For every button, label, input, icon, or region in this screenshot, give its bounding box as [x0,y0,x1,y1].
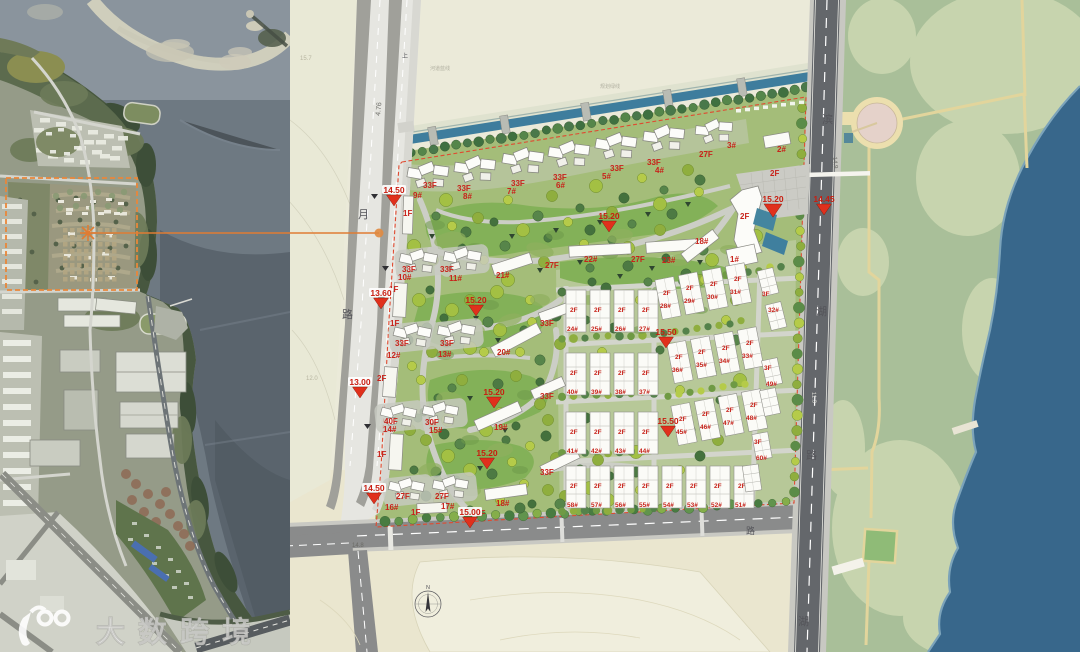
svg-text:58#: 58# [567,502,578,509]
svg-text:40#: 40# [567,389,578,396]
svg-text:1F: 1F [403,209,412,218]
svg-text:43#: 43# [615,448,626,455]
svg-text:2F: 2F [679,416,687,423]
svg-text:2F: 2F [675,354,683,361]
svg-text:22#: 22# [584,255,598,264]
svg-text:10#: 10# [398,273,412,282]
svg-text:27F: 27F [435,492,449,501]
svg-text:河道蓝线: 河道蓝线 [430,65,450,72]
svg-text:2F: 2F [594,307,602,314]
svg-text:14.50: 14.50 [383,185,405,195]
svg-text:1F: 1F [411,508,420,517]
svg-text:24#: 24# [567,326,578,333]
svg-text:7#: 7# [507,187,516,196]
svg-text:2F: 2F [642,307,650,314]
svg-text:2F: 2F [377,374,386,383]
svg-text:4#: 4# [655,166,664,175]
svg-text:8#: 8# [463,192,472,201]
svg-text:湖: 湖 [798,615,809,628]
svg-text:2F: 2F [770,169,779,178]
svg-text:14.8: 14.8 [352,543,364,549]
svg-text:28#: 28# [660,303,671,310]
svg-text:N: N [426,585,430,591]
svg-text:3F: 3F [762,291,770,298]
svg-text:15#: 15# [429,426,443,435]
svg-text:46#: 46# [700,424,711,431]
svg-text:湖: 湖 [816,305,827,318]
svg-text:15.20: 15.20 [465,295,487,305]
svg-text:14.45: 14.45 [813,194,835,204]
svg-text:2F: 2F [746,340,754,347]
svg-text:2F: 2F [666,483,674,490]
svg-text:29#: 29# [684,298,695,305]
svg-text:上: 上 [402,52,408,60]
svg-text:6#: 6# [556,181,565,190]
svg-text:2F: 2F [642,483,650,490]
svg-text:37#: 37# [639,389,650,396]
svg-text:滨: 滨 [822,112,833,126]
svg-text:2F: 2F [714,483,722,490]
svg-text:2F: 2F [722,345,730,352]
svg-text:2F: 2F [618,429,626,436]
svg-text:2F: 2F [618,370,626,377]
svg-text:16#: 16# [385,503,399,512]
svg-text:18#: 18# [496,499,510,508]
svg-text:27F: 27F [699,150,713,159]
svg-text:路: 路 [806,449,817,462]
svg-text:3F: 3F [764,365,772,372]
svg-text:9#: 9# [413,191,422,200]
svg-text:15.00: 15.00 [459,507,481,517]
svg-text:3#: 3# [727,141,736,150]
svg-text:41#: 41# [567,448,578,455]
svg-text:42#: 42# [591,448,602,455]
svg-text:60#: 60# [756,455,767,462]
svg-text:2F: 2F [686,285,694,292]
svg-text:2F: 2F [618,483,626,490]
svg-text:14#: 14# [383,425,397,434]
svg-text:33F: 33F [440,265,454,274]
svg-text:53#: 53# [687,502,698,509]
svg-text:23#: 23# [662,256,676,265]
svg-text:15.50: 15.50 [657,416,679,426]
svg-text:2F: 2F [594,429,602,436]
svg-text:2F: 2F [663,290,671,297]
svg-text:13.00: 13.00 [349,377,371,387]
svg-text:2F: 2F [750,402,758,409]
svg-text:15.20: 15.20 [483,387,505,397]
svg-text:33F: 33F [540,468,554,477]
svg-text:2F: 2F [690,483,698,490]
svg-text:34#: 34# [719,358,730,365]
svg-text:2F: 2F [726,407,734,414]
svg-text:55#: 55# [639,502,650,509]
svg-text:33F: 33F [540,392,554,401]
svg-text:2F: 2F [710,281,718,288]
svg-text:11.3: 11.3 [810,392,817,404]
svg-text:15.20: 15.20 [762,194,784,204]
svg-text:48#: 48# [746,415,757,422]
svg-text:35#: 35# [696,362,707,369]
svg-text:11#: 11# [449,274,462,283]
svg-text:30#: 30# [707,294,718,301]
svg-text:38#: 38# [615,389,626,396]
svg-text:2F: 2F [642,429,650,436]
svg-text:14.9: 14.9 [831,157,838,170]
svg-text:33F: 33F [440,339,454,348]
svg-text:12#: 12# [387,351,401,360]
svg-text:25#: 25# [591,326,602,333]
svg-text:21#: 21# [496,271,510,280]
svg-text:32#: 32# [768,307,779,314]
svg-text:2F: 2F [570,429,578,436]
svg-text:52#: 52# [711,502,722,509]
svg-text:39#: 39# [591,389,602,396]
svg-text:1#: 1# [730,255,739,264]
svg-text:13#: 13# [438,350,452,359]
svg-text:19#: 19# [494,423,508,432]
svg-text:3F: 3F [754,439,762,446]
svg-text:47#: 47# [723,420,734,427]
svg-text:33F: 33F [540,319,554,328]
svg-text:2F: 2F [594,370,602,377]
svg-text:27F: 27F [396,492,410,501]
svg-text:月: 月 [358,209,369,221]
svg-text:49#: 49# [766,381,777,388]
svg-text:31#: 31# [730,289,741,296]
svg-text:12.0: 12.0 [306,376,318,382]
svg-text:13.60: 13.60 [370,288,392,298]
svg-text:27F: 27F [545,261,559,270]
svg-text:15.50: 15.50 [655,327,677,337]
svg-text:56#: 56# [615,502,626,509]
svg-text:2F: 2F [642,370,650,377]
svg-text:20#: 20# [497,348,511,357]
svg-text:33#: 33# [742,353,753,360]
svg-text:2F: 2F [618,307,626,314]
svg-text:2F: 2F [702,411,710,418]
svg-text:15.7: 15.7 [300,56,312,62]
svg-text:2F: 2F [734,276,742,283]
svg-text:规划绿线: 规划绿线 [600,83,620,90]
svg-text:2F: 2F [570,483,578,490]
svg-text:2F: 2F [570,370,578,377]
svg-text:15.20: 15.20 [598,211,620,221]
svg-text:33F: 33F [395,339,409,348]
svg-text:14.50: 14.50 [363,483,385,493]
svg-text:57#: 57# [591,502,602,509]
svg-text:27F: 27F [631,255,645,264]
svg-text:大数跨境: 大数跨境 [96,616,264,649]
svg-text:17#: 17# [441,502,455,511]
svg-text:33F: 33F [423,181,437,190]
svg-text:2#: 2# [777,145,786,154]
svg-text:27#: 27# [639,326,650,333]
svg-text:51#: 51# [735,502,746,509]
svg-text:18#: 18# [695,237,709,246]
svg-text:2F: 2F [698,349,706,356]
svg-text:54#: 54# [663,502,674,509]
svg-text:4.76: 4.76 [375,102,383,116]
svg-text:2F: 2F [740,212,749,221]
svg-text:2F: 2F [594,483,602,490]
svg-text:45#: 45# [676,429,687,436]
svg-text:1F: 1F [390,319,399,328]
svg-text:33F: 33F [610,164,624,173]
svg-text:路: 路 [342,308,353,321]
svg-text:2F: 2F [570,307,578,314]
svg-text:44#: 44# [639,448,650,455]
svg-text:5#: 5# [602,172,611,181]
svg-text:26#: 26# [615,326,626,333]
svg-text:1F: 1F [377,450,386,459]
svg-text:15.20: 15.20 [476,448,498,458]
svg-text:路: 路 [746,525,755,536]
svg-text:36#: 36# [672,367,683,374]
